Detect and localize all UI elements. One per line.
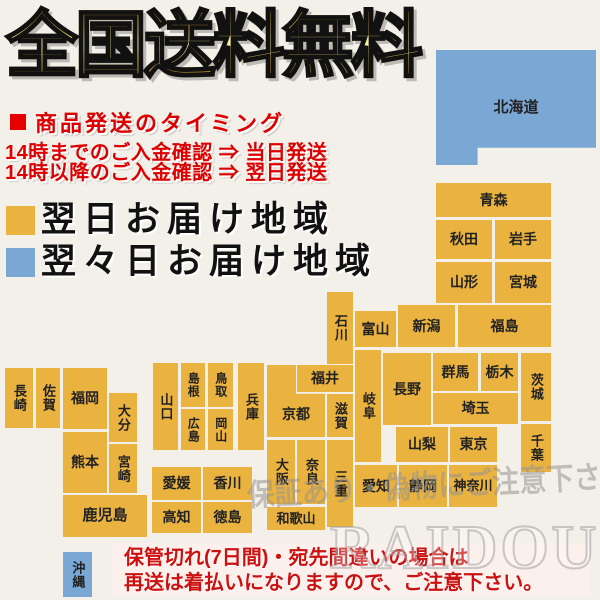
region-hiroshima: 広島 [181, 409, 205, 450]
region-label: 宮城 [509, 275, 537, 290]
region-label: 秋田 [450, 232, 478, 247]
region-okayama: 岡山 [208, 409, 233, 450]
region-oita: 大分 [109, 393, 137, 442]
region-shimane: 島根 [181, 363, 205, 407]
region-label: 佐賀 [41, 384, 55, 412]
region-yamanashi: 山梨 [396, 427, 448, 462]
region-label: 群馬 [442, 365, 470, 380]
region-tokushima: 徳島 [203, 502, 252, 533]
region-gunma: 群馬 [433, 353, 478, 391]
region-label: 広島 [187, 417, 200, 443]
region-label: 熊本 [71, 455, 99, 470]
region-hokkaido: 北海道 [436, 50, 596, 165]
region-yamagata: 山形 [436, 262, 492, 303]
region-label: 島根 [187, 372, 200, 398]
region-label: 東京 [460, 437, 488, 452]
region-label: 和歌山 [276, 512, 315, 526]
region-fukui: 福井 [297, 365, 353, 392]
region-label: 鹿児島 [82, 508, 127, 524]
region-kochi: 高知 [152, 502, 201, 533]
region-niigata: 新潟 [398, 305, 455, 347]
region-label: 石川 [333, 314, 347, 342]
region-aomori: 青森 [436, 183, 551, 217]
region-ehime: 愛媛 [152, 467, 201, 500]
region-label: 鳥取 [214, 372, 227, 398]
region-iwate: 岩手 [495, 220, 551, 259]
region-label: 沖縄 [71, 561, 85, 589]
region-label: 富山 [362, 322, 390, 337]
region-label: 埼玉 [462, 401, 490, 416]
region-label: 栃木 [486, 365, 514, 380]
region-label: 宮崎 [116, 455, 130, 483]
region-kumamoto: 熊本 [63, 432, 107, 493]
region-label: 愛媛 [163, 476, 191, 491]
region-label: 青森 [480, 193, 508, 208]
region-kagawa: 香川 [203, 467, 252, 500]
region-kagoshima: 鹿児島 [63, 495, 147, 537]
region-label: 兵庫 [244, 393, 258, 421]
region-label: 香川 [214, 476, 242, 491]
region-label: 徳島 [214, 510, 242, 525]
region-label: 山梨 [408, 437, 436, 452]
region-fukushima: 福島 [458, 305, 551, 347]
region-label: 新潟 [413, 319, 441, 334]
region-akita: 秋田 [436, 220, 492, 259]
region-label: 北海道 [493, 100, 538, 116]
region-saga: 佐賀 [36, 368, 60, 428]
region-tottori: 鳥取 [208, 363, 233, 407]
region-ishikawa: 石川 [327, 292, 353, 364]
region-label: 茨城 [529, 373, 543, 401]
region-label: 福井 [311, 371, 339, 386]
region-label: 山形 [450, 275, 478, 290]
region-label: 岩手 [509, 232, 537, 247]
region-label: 長野 [393, 382, 421, 397]
region-label: 大分 [116, 404, 130, 432]
region-shiga: 滋賀 [327, 394, 353, 437]
region-label: 長崎 [12, 384, 26, 412]
region-toyama: 富山 [355, 311, 396, 347]
region-label: 福島 [491, 319, 519, 334]
region-yamaguchi: 山口 [153, 363, 178, 450]
region-okinawa: 沖縄 [63, 552, 92, 597]
region-gifu: 岐阜 [355, 350, 381, 462]
region-fukuoka: 福岡 [63, 368, 107, 429]
region-nagano: 長野 [383, 353, 431, 425]
region-label: 山口 [159, 393, 173, 421]
region-ibaraki: 茨城 [521, 353, 551, 421]
region-miyagi: 宮城 [495, 262, 551, 303]
region-nagasaki: 長崎 [5, 368, 33, 428]
region-label: 岐阜 [361, 392, 375, 420]
region-saitama: 埼玉 [433, 393, 518, 424]
region-hyogo: 兵庫 [238, 363, 264, 450]
region-label: 高知 [163, 510, 191, 525]
region-label: 京都 [282, 407, 310, 422]
region-miyazaki: 宮崎 [109, 444, 137, 493]
region-label: 岡山 [214, 417, 227, 443]
region-tochigi: 栃木 [481, 353, 518, 391]
region-label: 滋賀 [333, 402, 347, 430]
watermark-brand-raidou: RAIDOU [330, 513, 599, 584]
region-label: 福岡 [71, 391, 99, 406]
